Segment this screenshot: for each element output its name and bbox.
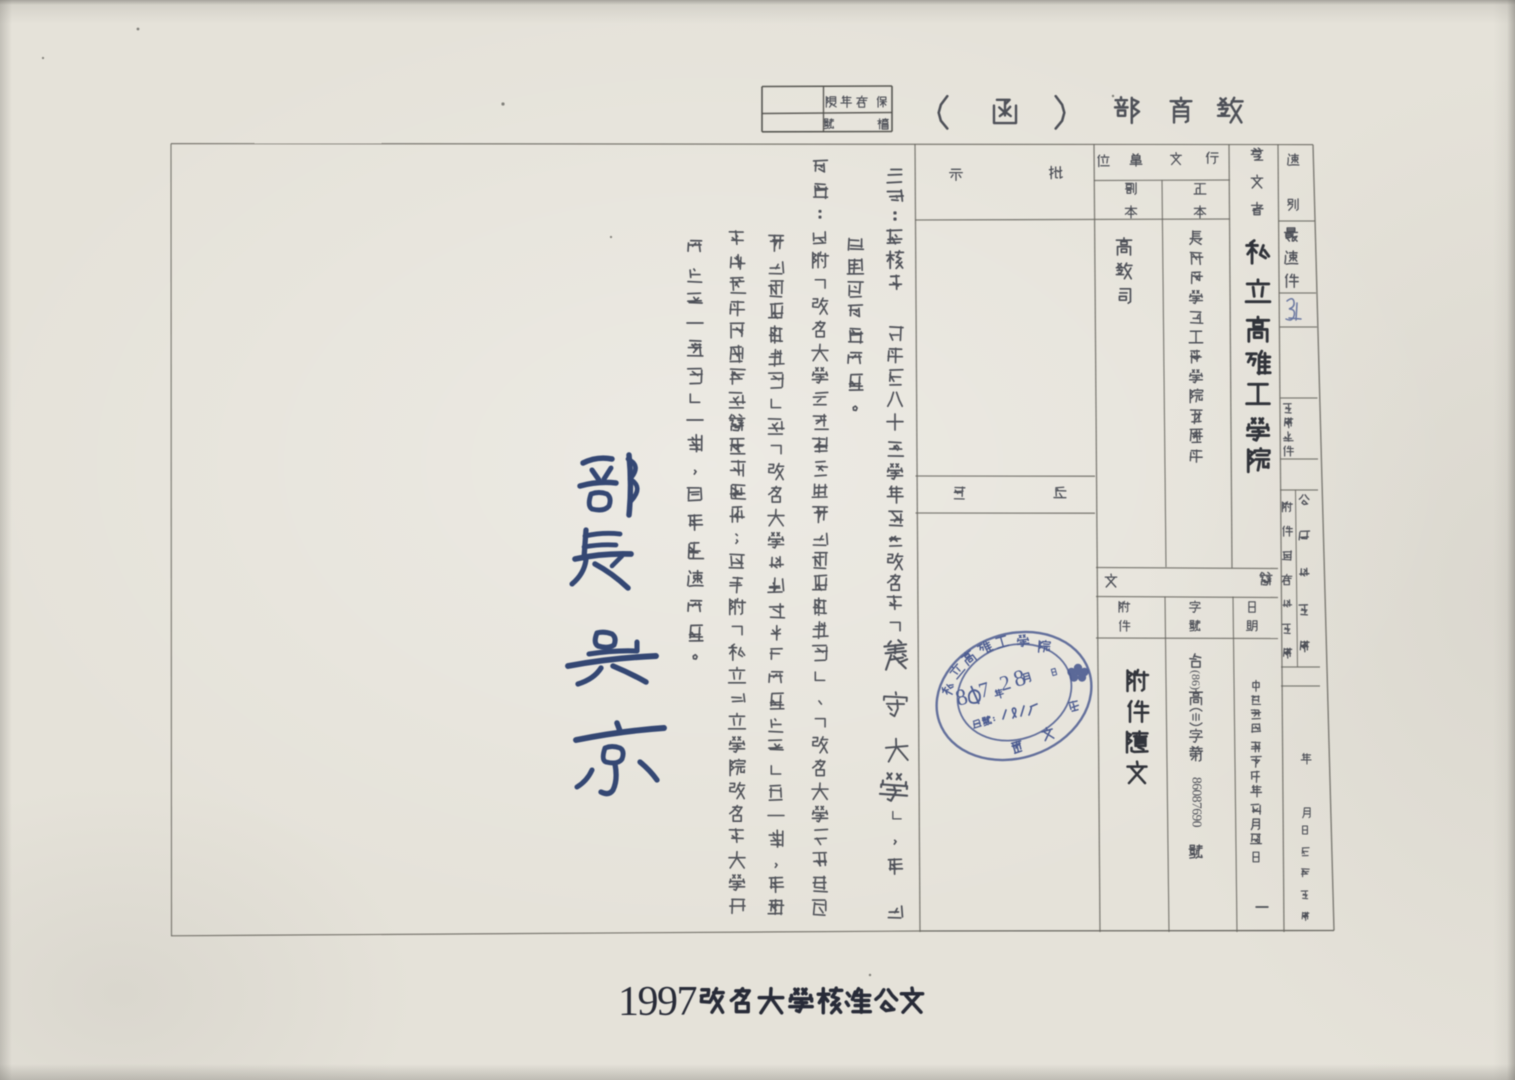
svg-text:7: 7 xyxy=(976,677,993,703)
svg-text:8: 8 xyxy=(1010,665,1028,692)
svg-text:1997: 1997 xyxy=(618,979,697,1025)
svg-text:86087690: 86087690 xyxy=(1190,777,1205,828)
svg-text:(86): (86) xyxy=(1189,670,1203,690)
svg-text:8: 8 xyxy=(952,684,970,711)
